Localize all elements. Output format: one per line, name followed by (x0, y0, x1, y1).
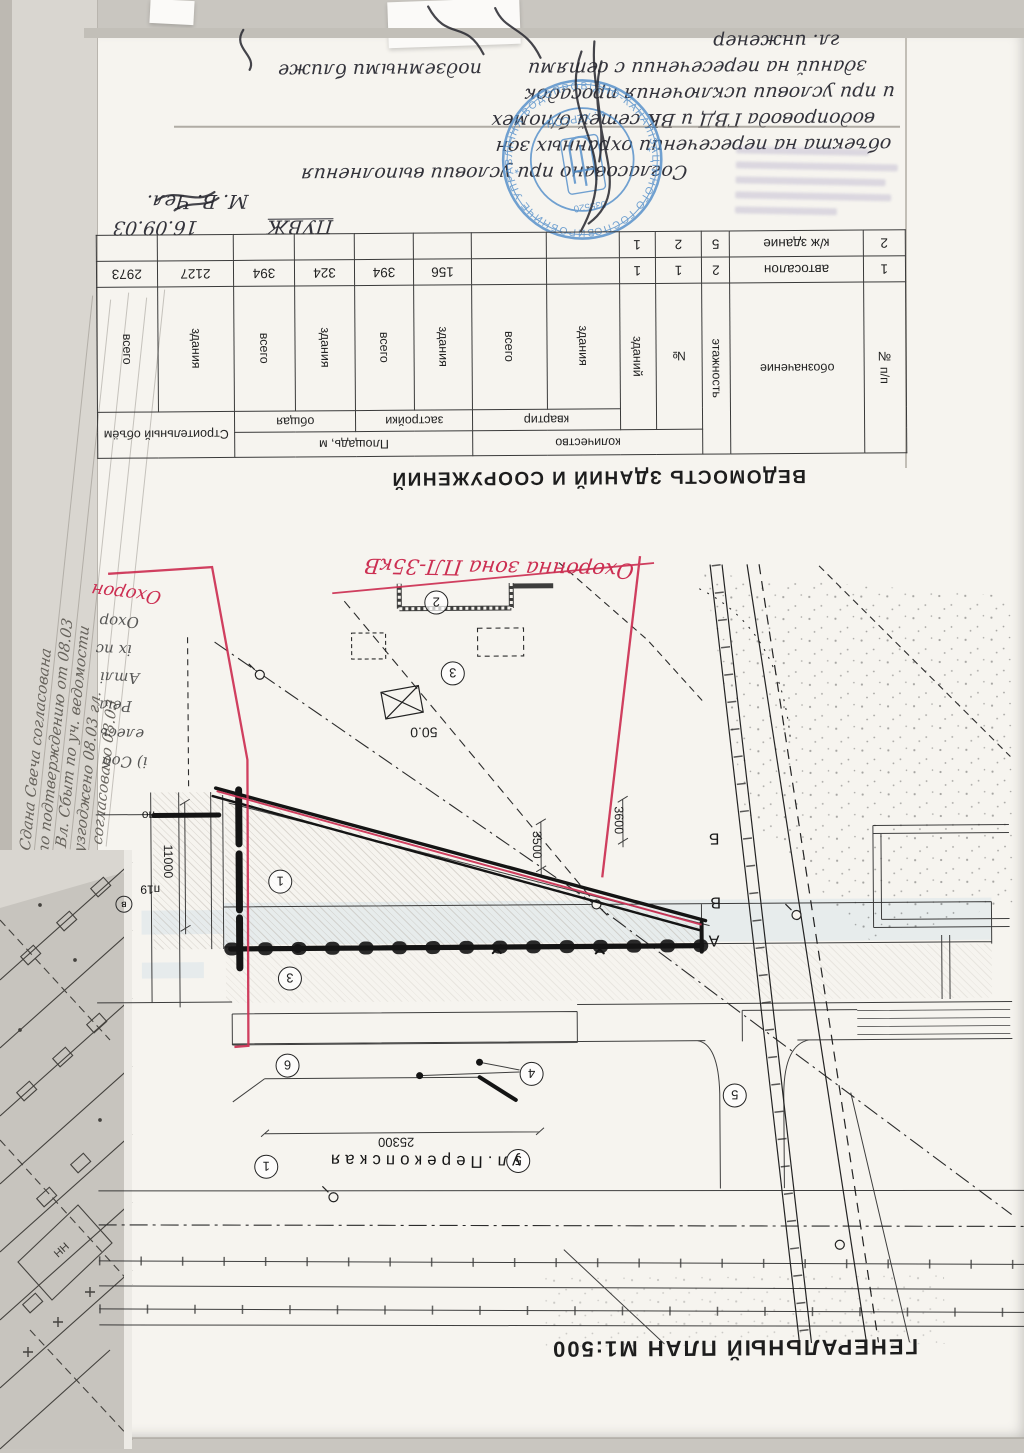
dim-25300: 25300 (378, 1135, 414, 1150)
building2-walls (399, 583, 553, 609)
table: № п/п обозначение этажность количество П… (96, 229, 908, 459)
plan-note: елесь (100, 724, 144, 743)
col-npp: № п/п (863, 282, 907, 453)
point-letter: В (710, 893, 721, 911)
col-zastroyki: застройки (356, 410, 473, 432)
street-name: ул.Перекопская (283, 1149, 563, 1172)
transformer-symbol (381, 686, 423, 719)
col-etazh: этажность (702, 283, 731, 454)
vegetation-area (704, 571, 1017, 943)
dim-3500: 3500 (530, 831, 544, 859)
col-zdaniy: зданий (619, 283, 656, 429)
col-oboz: обозначение (730, 282, 864, 454)
site-plan-drawing (87, 541, 1024, 1353)
road-hatch (226, 944, 992, 1003)
building1-hatch (225, 792, 702, 949)
plan-note: Охор (99, 612, 139, 631)
grid-circle-label: в (115, 896, 132, 913)
sub-zdaniya: здания (413, 285, 472, 410)
plan-note: і) Соб (102, 752, 148, 771)
col-nom: № (655, 283, 702, 429)
plan-circle-number: 1 (254, 1155, 278, 1179)
plan-circle-number: 2 (424, 590, 448, 614)
col-obyom: Строительный объём (97, 411, 235, 458)
vedomost-title: ВЕДОМОСТЬ ЗДАНИЙ И СООРУЖЕНИЙ (318, 463, 878, 489)
point-letter: А (709, 931, 720, 949)
plan-circle-number: 5 (723, 1083, 747, 1107)
sheet-content: ПУВЖ 16.09.03 М. В. Чел. Согласовано при… (0, 0, 1024, 1453)
sub-zdaniya: здания (547, 284, 620, 410)
vegetation-area-2 (544, 1272, 944, 1347)
grid-label: п19 (140, 882, 160, 896)
plan-note: Атлі (100, 668, 140, 687)
plan-note: іх пс (95, 640, 132, 659)
scanned-genplan-document: { "document": { "genplan_title": "ГЕНЕРА… (0, 0, 1024, 1449)
sub-zdaniya: здания (157, 286, 235, 412)
sub-vsego: всего (355, 285, 414, 410)
sub-zdaniya: здания (294, 286, 355, 411)
sub-vsego: всего (97, 287, 158, 412)
vedomost-table: № п/п обозначение этажность количество П… (94, 234, 908, 459)
plan-circle-number: 3 (278, 966, 302, 990)
sub-vsego: всего (472, 284, 548, 410)
plan-circle-number: 6 (275, 1053, 299, 1077)
dim-3600: 3600 (612, 806, 626, 834)
dim-50: 50.0 (410, 725, 437, 741)
plan-note: Реіа (99, 696, 132, 715)
sub-vsego: всего (234, 286, 295, 411)
plan-circle-number: 1 (268, 870, 292, 894)
col-kvartir: квартир (473, 409, 620, 431)
grid-label: по (142, 808, 155, 822)
dim-11000: 11000 (161, 844, 175, 878)
col-ploshchad: Площадь, м (235, 431, 473, 458)
col-obshchaya: общая (235, 411, 356, 433)
plan-circle-number: 3 (441, 661, 465, 685)
point-letter: Б (709, 829, 720, 847)
col-kolvo: количество (473, 429, 703, 456)
plan-circle-number: 4 (520, 1062, 544, 1086)
